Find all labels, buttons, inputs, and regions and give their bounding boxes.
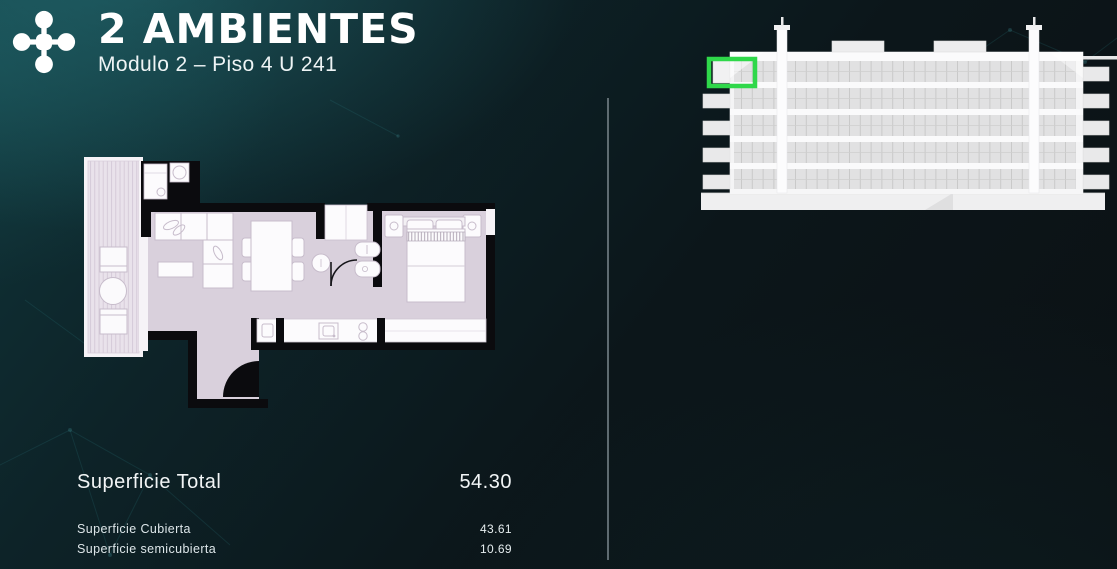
page: 2 AMBIENTES Modulo 2 – Piso 4 U 241 bbox=[0, 0, 1117, 569]
apartment-floor-plan bbox=[55, 145, 525, 430]
semicovered-surface-label: Superficie semicubierta bbox=[77, 539, 216, 559]
covered-surface-label: Superficie Cubierta bbox=[77, 519, 191, 539]
right-balconies bbox=[1083, 67, 1109, 189]
vertical-divider bbox=[607, 98, 609, 560]
building-base bbox=[701, 193, 1105, 210]
page-subtitle: Modulo 2 – Piso 4 U 241 bbox=[98, 53, 419, 77]
building-side-elevation bbox=[687, 16, 1117, 222]
total-surface-label: Superficie Total bbox=[77, 471, 221, 494]
total-surface-value: 54.30 bbox=[459, 471, 512, 494]
covered-surface-value: 43.61 bbox=[480, 519, 512, 539]
closet bbox=[325, 205, 367, 240]
surface-summary: Superficie Total 54.30 Superficie Cubier… bbox=[77, 471, 512, 559]
molecule-cross-logo-icon bbox=[12, 10, 76, 74]
balcony-area bbox=[84, 157, 143, 357]
page-title: 2 AMBIENTES bbox=[98, 6, 419, 52]
semicovered-surface-value: 10.69 bbox=[480, 539, 512, 559]
covered-surface-row: Superficie Cubierta 43.61 bbox=[77, 519, 512, 539]
semicovered-surface-row: Superficie semicubierta 10.69 bbox=[77, 539, 512, 559]
header: 2 AMBIENTES Modulo 2 – Piso 4 U 241 bbox=[12, 6, 419, 77]
